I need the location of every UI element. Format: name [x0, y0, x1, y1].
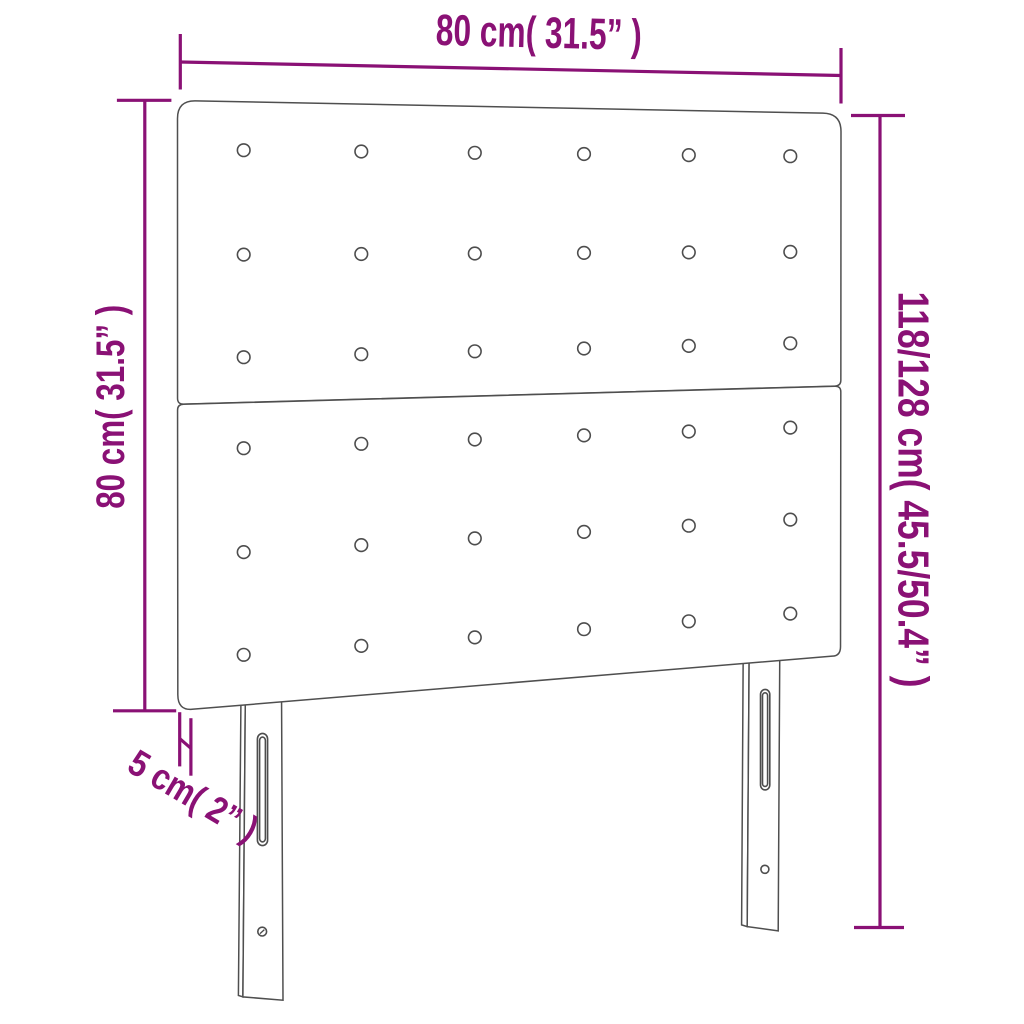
svg-text:80 cm( 31.5” ): 80 cm( 31.5” ) — [89, 305, 133, 509]
svg-text:118/128 cm( 45.5/50.4” ): 118/128 cm( 45.5/50.4” ) — [889, 292, 938, 688]
svg-text:80 cm( 31.5” ): 80 cm( 31.5” ) — [435, 6, 642, 60]
